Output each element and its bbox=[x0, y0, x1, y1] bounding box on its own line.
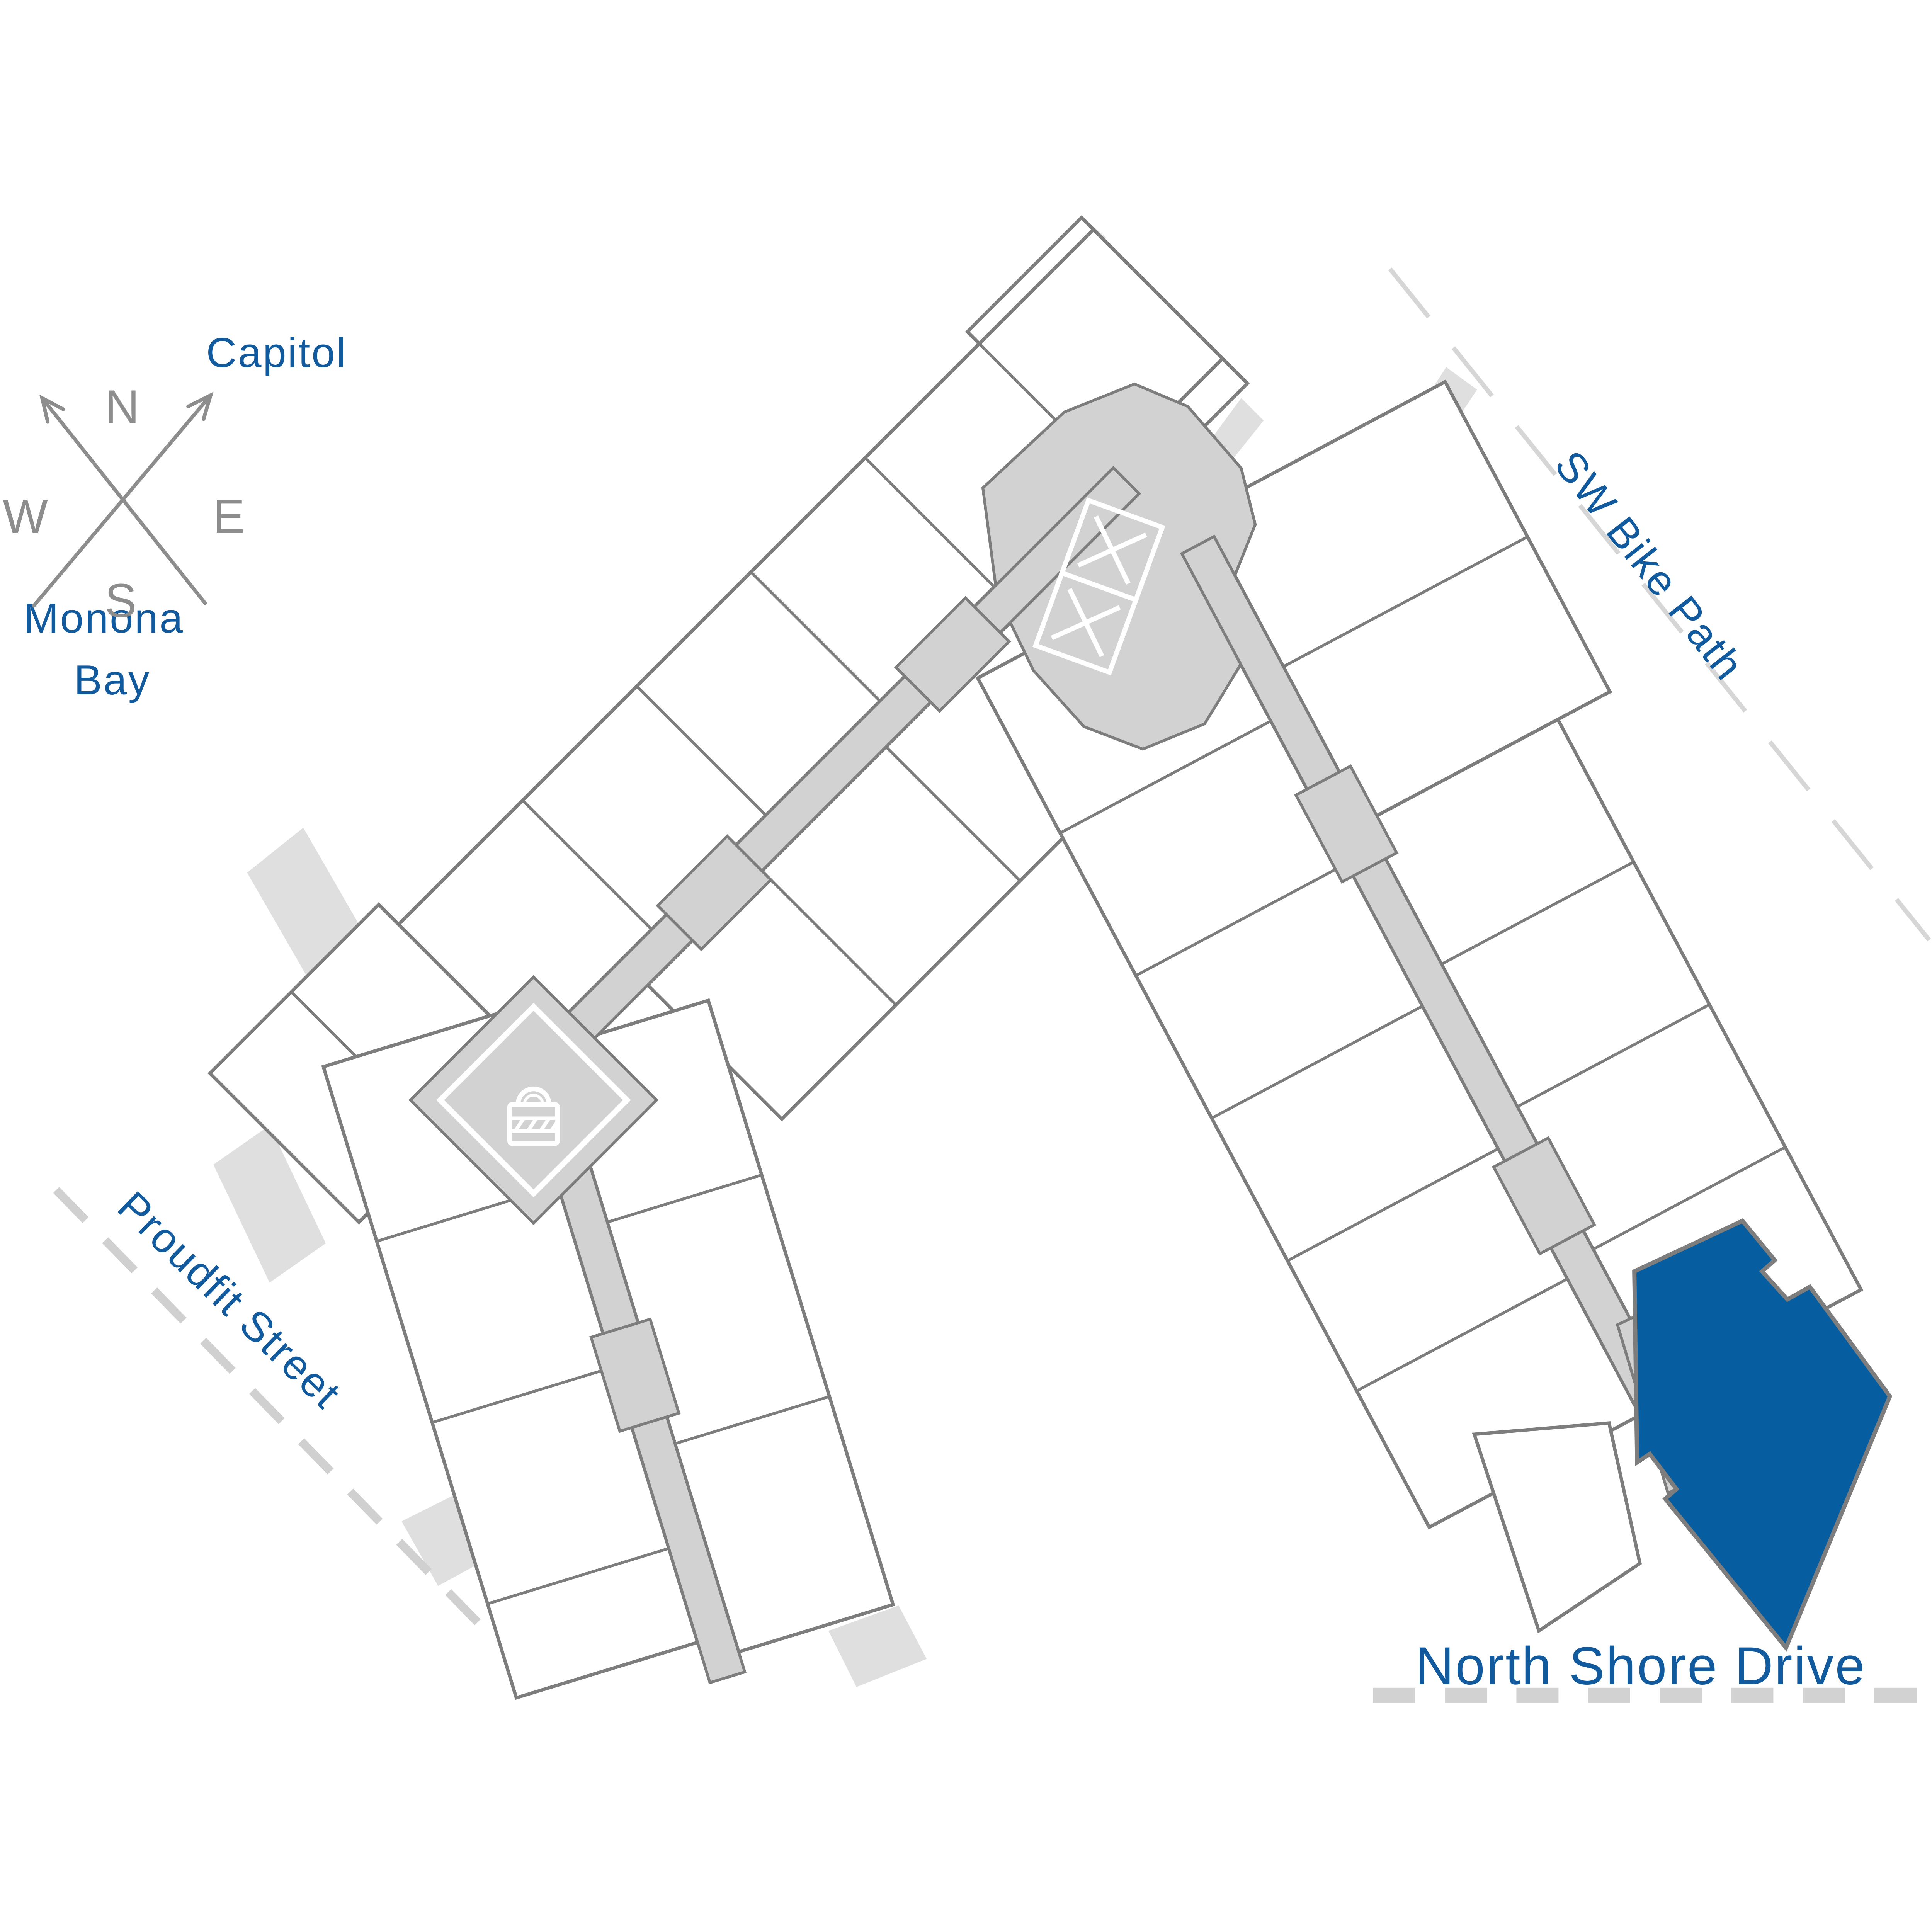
label-capitol: Capitol bbox=[206, 329, 347, 376]
compass-letter-e: E bbox=[213, 490, 245, 543]
street-label-proudfit-street: Proudfit Street bbox=[109, 1182, 350, 1418]
street-label-north-shore-drive: North Shore Drive bbox=[1415, 1636, 1866, 1696]
compass-letter-w: W bbox=[3, 490, 48, 543]
label-monona-bay-line1: Monona bbox=[24, 595, 184, 642]
unit-end-southeast[interactable] bbox=[1474, 1423, 1640, 1631]
compass-rose-icon: N W E S bbox=[3, 381, 245, 628]
label-monona-bay-line2: Bay bbox=[74, 656, 151, 704]
svg-text:Proudfit Street: Proudfit Street bbox=[109, 1182, 350, 1418]
site-plan-page: SW Bike Path Proudfit Street North Shore… bbox=[0, 0, 1932, 1932]
compass-letter-s: S bbox=[105, 574, 136, 628]
building-floor-plan bbox=[210, 218, 1916, 1718]
building-site-map: SW Bike Path Proudfit Street North Shore… bbox=[0, 0, 1932, 1932]
compass-letter-n: N bbox=[105, 381, 139, 434]
